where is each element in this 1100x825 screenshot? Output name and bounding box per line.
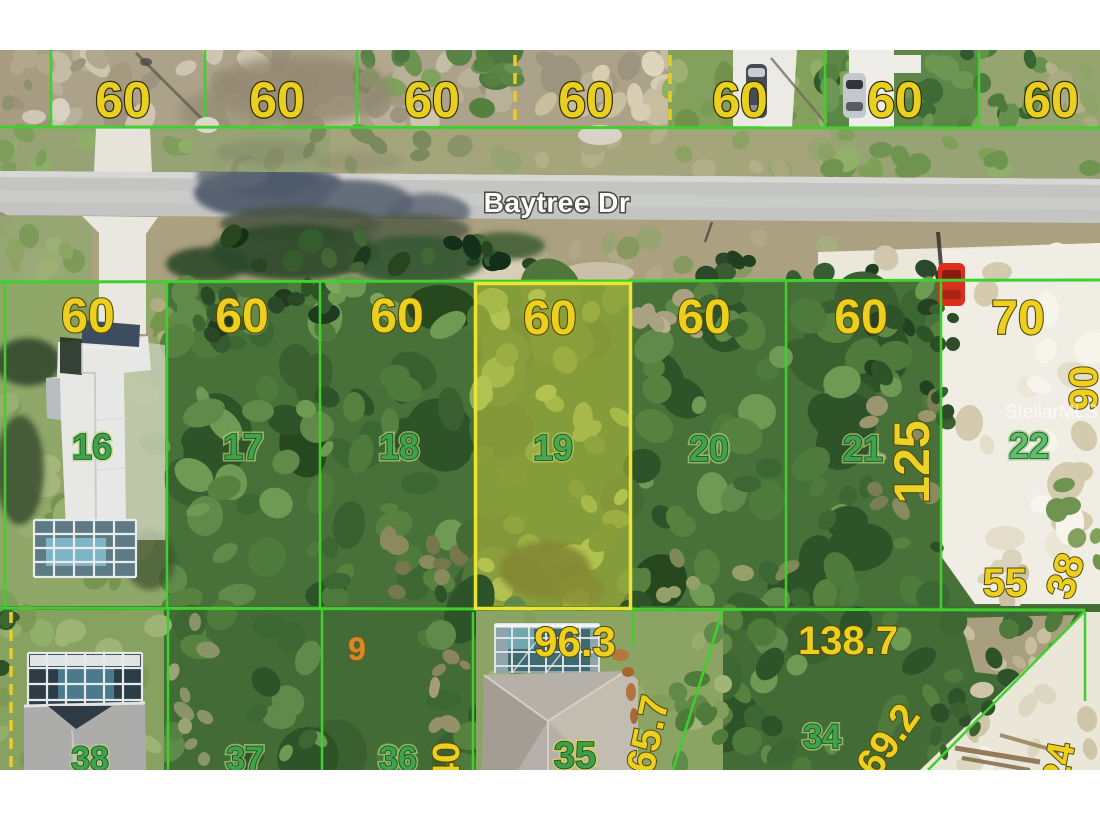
svg-text:70: 70 <box>991 292 1044 345</box>
svg-text:60: 60 <box>712 72 768 128</box>
svg-text:60: 60 <box>834 291 887 344</box>
svg-text:125: 125 <box>884 420 940 503</box>
svg-text:60: 60 <box>95 72 151 128</box>
svg-text:Baytree Dr: Baytree Dr <box>484 187 631 218</box>
svg-text:60: 60 <box>215 290 268 343</box>
svg-text:60: 60 <box>370 290 423 343</box>
svg-text:60: 60 <box>61 290 114 343</box>
svg-text:21: 21 <box>843 428 883 469</box>
svg-text:60: 60 <box>1023 72 1079 128</box>
svg-text:StellarMLS: StellarMLS <box>1005 402 1098 423</box>
svg-text:19: 19 <box>533 427 573 468</box>
svg-text:55: 55 <box>983 561 1028 605</box>
svg-text:60: 60 <box>677 291 730 344</box>
svg-text:60: 60 <box>558 72 614 128</box>
svg-text:60: 60 <box>404 72 460 128</box>
svg-text:34: 34 <box>803 718 841 756</box>
svg-text:60: 60 <box>249 72 305 128</box>
svg-text:16: 16 <box>72 426 112 467</box>
svg-text:20: 20 <box>689 428 729 469</box>
svg-text:60: 60 <box>523 292 576 345</box>
svg-text:18: 18 <box>379 426 419 467</box>
svg-text:9: 9 <box>348 631 366 667</box>
svg-text:60: 60 <box>867 72 923 128</box>
svg-text:22: 22 <box>1009 425 1049 466</box>
svg-text:17: 17 <box>223 426 263 467</box>
svg-text:96.3: 96.3 <box>534 618 616 665</box>
svg-text:138.7: 138.7 <box>798 619 898 663</box>
